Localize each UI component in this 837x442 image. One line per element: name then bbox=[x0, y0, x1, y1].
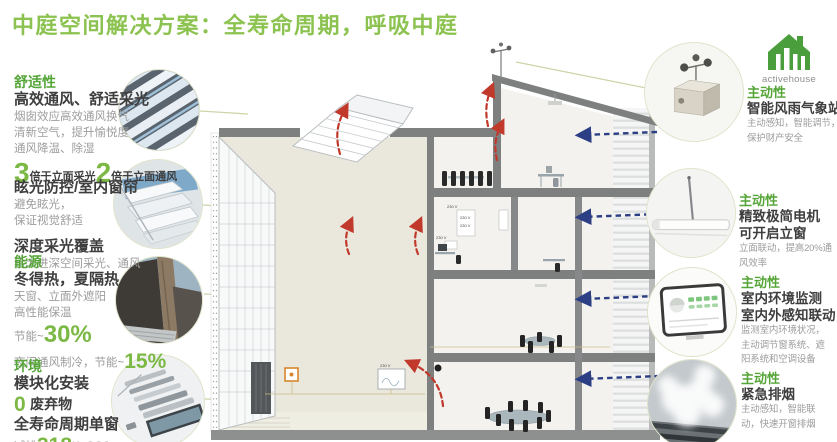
body-line: 监测室内环境状况， bbox=[741, 324, 836, 339]
metric-prefix: 节能~ bbox=[14, 331, 44, 343]
weather-station-image bbox=[645, 43, 743, 141]
body-line: 烟囱效应高效通风换气 bbox=[14, 109, 224, 125]
section-monitoring: 主动性 室内环境监测 室内外感知联动 监测室内环境状况， 主动调节窗系统、遮 阳… bbox=[741, 275, 836, 368]
body-line: 主动调节窗系统、遮 bbox=[741, 339, 836, 354]
ceiling-speaker bbox=[435, 365, 442, 372]
category-label: 主动性 bbox=[739, 193, 832, 208]
section-heading: 全寿命周期单窗 bbox=[14, 415, 224, 434]
metric-row: 减排318KgCO2 bbox=[14, 435, 224, 442]
partition-wall bbox=[575, 197, 582, 430]
body-line: 保证视觉舒适 bbox=[14, 213, 224, 229]
metric-label: 废弃物 bbox=[30, 396, 72, 412]
weather-station-photo bbox=[644, 42, 744, 142]
logo-text: activehouse bbox=[758, 74, 820, 85]
category-label: 舒适性 bbox=[14, 74, 224, 90]
section-heading: 模块化安装 bbox=[14, 374, 224, 393]
body-line: 动，快速开窗排烟 bbox=[741, 418, 815, 433]
section-heading: 智能风雨气象站 bbox=[747, 100, 837, 117]
voltage-label: 230 V bbox=[460, 223, 471, 228]
smoke-vent-photo bbox=[647, 359, 737, 442]
chain-actuator-image bbox=[647, 169, 735, 257]
body-line: 天窗、立面外遮阳 bbox=[14, 289, 224, 305]
radiator bbox=[251, 362, 271, 414]
house-icon bbox=[766, 32, 812, 72]
metric-value: 30% bbox=[44, 321, 92, 348]
voltage-label: 230 V bbox=[436, 235, 447, 240]
section-heading: 冬得热，夏隔热 bbox=[14, 270, 224, 289]
page-title: 中庭空间解决方案：全寿命周期，呼吸中庭 bbox=[12, 8, 459, 40]
section-weather-station: 主动性 智能风雨气象站 主动感知，智能调节， 保护财产安全 bbox=[747, 85, 837, 146]
body-line: 保护财产安全 bbox=[747, 132, 837, 147]
section-heading: 紧急排烟 bbox=[741, 386, 815, 403]
metric-row: 0 废弃物 bbox=[14, 394, 224, 415]
section-smoke-vent: 主动性 紧急排烟 主动感知，智能联 动，快速开窗排烟 bbox=[741, 371, 815, 432]
section-heading: 眩光防控/室内窗帘 bbox=[14, 178, 224, 197]
category-label: 主动性 bbox=[747, 85, 837, 100]
body-line: 高性能保温 bbox=[14, 305, 224, 321]
window-actuator-photo bbox=[646, 168, 736, 258]
section-heading: 精致极简电机 bbox=[739, 208, 832, 225]
monitor-tablet-image bbox=[648, 268, 736, 356]
voltage-label: 230 V bbox=[460, 215, 471, 220]
section-actuator: 主动性 精致极简电机 可开启立窗 立面联动，提高20%通 风效率 bbox=[739, 193, 832, 271]
environment-monitor-photo bbox=[647, 267, 737, 357]
body-line: 立面联动，提高20%通 bbox=[739, 242, 832, 257]
section-energy: 能源 冬得热，夏隔热 天窗、立面外遮阳 高性能保温 节能~30% 夜间通风制冷，… bbox=[14, 254, 224, 374]
category-label: 环境 bbox=[14, 358, 224, 374]
facade-louvers bbox=[613, 108, 655, 430]
partition-wall bbox=[511, 197, 518, 270]
activehouse-logo: activehouse bbox=[758, 32, 820, 85]
body-line: 阳系统和空调设备 bbox=[741, 353, 836, 368]
body-line: 风效率 bbox=[739, 257, 832, 272]
section-heading: 室内外感知联动 bbox=[741, 307, 836, 324]
orange-switch-box bbox=[285, 368, 298, 381]
building-cross-section: 230 V 230 V 230 V 230 V bbox=[205, 38, 665, 442]
section-comfort: 舒适性 高效通风、舒适采光 烟囱效应高效通风换气 清新空气，提升愉悦度 通风降温… bbox=[14, 74, 224, 192]
infographic-page: 中庭空间解决方案：全寿命周期，呼吸中庭 bbox=[0, 0, 837, 442]
section-heading: 可开启立窗 bbox=[739, 225, 832, 242]
section-heading: 高效通风、舒适采光 bbox=[14, 90, 224, 109]
voltage-label: 230 V bbox=[447, 204, 458, 209]
voltage-label: 230 V bbox=[380, 363, 391, 368]
section-environment: 环境 模块化安装 0 废弃物 全寿命周期单窗 减排318KgCO2 bbox=[14, 358, 224, 442]
smoke-extraction-image bbox=[648, 360, 736, 442]
body-line: 主动感知，智能联 bbox=[741, 403, 815, 418]
weather-station-mast bbox=[491, 43, 512, 79]
body-line: 通风降温、除湿 bbox=[14, 141, 224, 157]
body-line: 主动感知，智能调节， bbox=[747, 117, 837, 132]
metric-row: 节能~30% bbox=[14, 322, 224, 350]
body-line: 避免眩光， bbox=[14, 197, 224, 213]
category-label: 能源 bbox=[14, 254, 224, 270]
body-line: 清新空气，提升愉悦度 bbox=[14, 125, 224, 141]
category-label: 主动性 bbox=[741, 371, 815, 386]
category-label: 主动性 bbox=[741, 275, 836, 290]
metric-value: 0 bbox=[14, 393, 26, 416]
base-slab bbox=[211, 430, 660, 440]
metric-value: 318 bbox=[37, 434, 72, 442]
section-heading: 室内环境监测 bbox=[741, 290, 836, 307]
